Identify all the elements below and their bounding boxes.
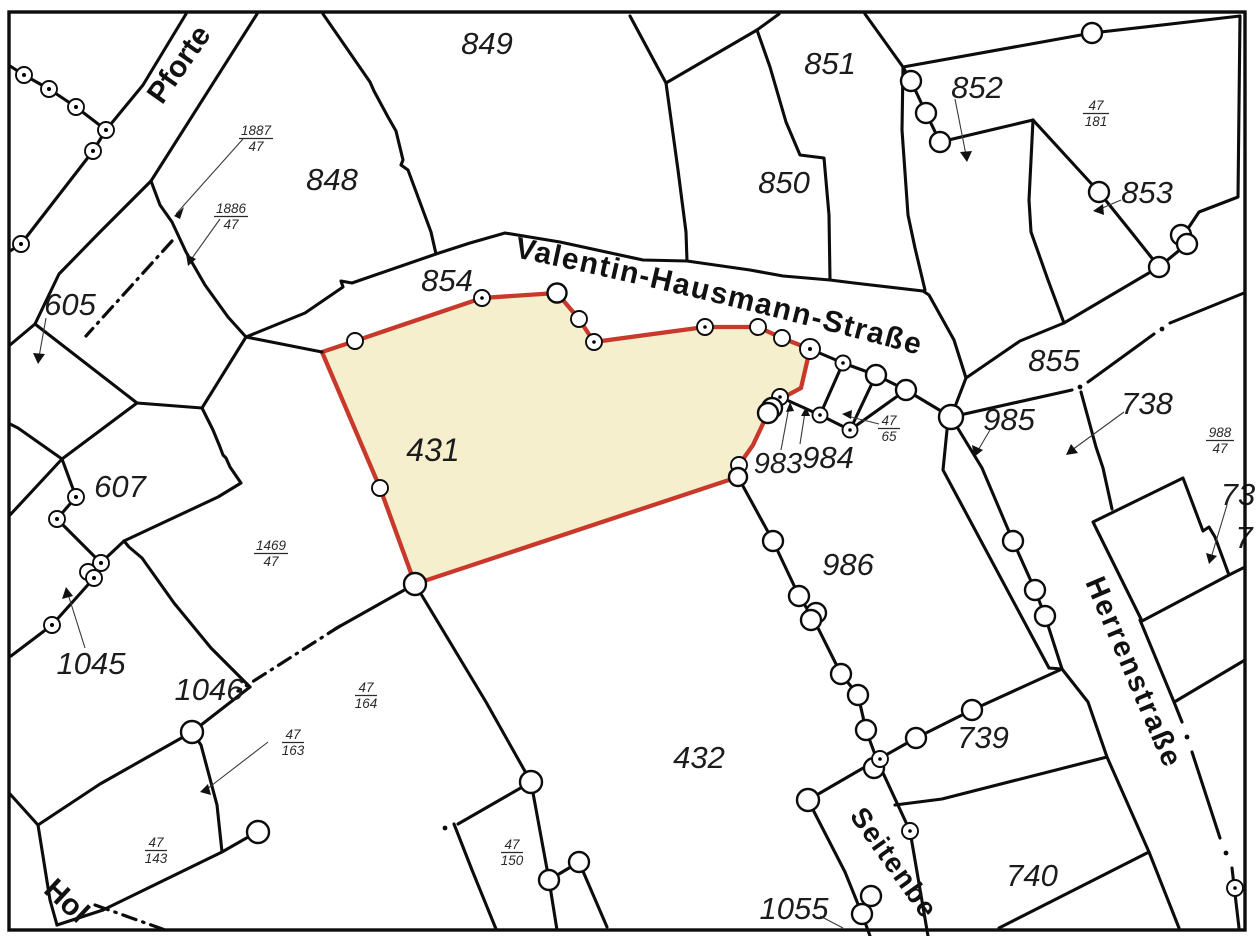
svg-text:855: 855 [1028, 343, 1080, 378]
svg-text:848: 848 [306, 162, 358, 197]
svg-text:47: 47 [1088, 98, 1104, 113]
svg-text:607: 607 [94, 469, 147, 504]
svg-text:432: 432 [673, 740, 725, 775]
svg-text:1469: 1469 [256, 538, 287, 553]
svg-text:853: 853 [1121, 175, 1173, 210]
svg-text:1886: 1886 [216, 201, 247, 216]
svg-text:73: 73 [1221, 477, 1255, 512]
svg-text:1046: 1046 [175, 672, 245, 707]
svg-text:47: 47 [358, 680, 374, 695]
svg-text:47: 47 [285, 727, 301, 742]
svg-text:47: 47 [1212, 441, 1228, 456]
svg-text:849: 849 [461, 26, 513, 61]
svg-text:851: 851 [804, 46, 856, 81]
svg-text:986: 986 [822, 547, 874, 582]
svg-text:47: 47 [248, 139, 264, 154]
svg-text:740: 740 [1006, 858, 1058, 893]
svg-text:854: 854 [421, 263, 473, 298]
svg-text:1887: 1887 [241, 123, 272, 138]
svg-text:47: 47 [263, 554, 279, 569]
svg-text:47: 47 [148, 835, 164, 850]
svg-text:150: 150 [501, 853, 524, 868]
svg-text:850: 850 [758, 165, 810, 200]
svg-text:983: 983 [754, 448, 802, 480]
svg-text:47: 47 [223, 217, 239, 232]
svg-text:431: 431 [406, 432, 459, 468]
svg-text:738: 738 [1121, 386, 1173, 421]
svg-text:984: 984 [802, 440, 854, 475]
svg-text:605: 605 [44, 287, 96, 322]
svg-text:65: 65 [881, 429, 897, 444]
svg-text:852: 852 [951, 70, 1003, 105]
svg-text:1045: 1045 [57, 646, 127, 681]
svg-text:163: 163 [282, 743, 305, 758]
svg-text:985: 985 [983, 402, 1035, 437]
svg-text:47: 47 [504, 837, 520, 852]
svg-text:181: 181 [1085, 114, 1108, 129]
svg-text:988: 988 [1209, 425, 1232, 440]
svg-text:1055: 1055 [760, 891, 830, 926]
svg-text:164: 164 [355, 696, 378, 711]
svg-text:143: 143 [145, 851, 168, 866]
svg-text:47: 47 [881, 413, 897, 428]
svg-text:739: 739 [957, 720, 1009, 755]
